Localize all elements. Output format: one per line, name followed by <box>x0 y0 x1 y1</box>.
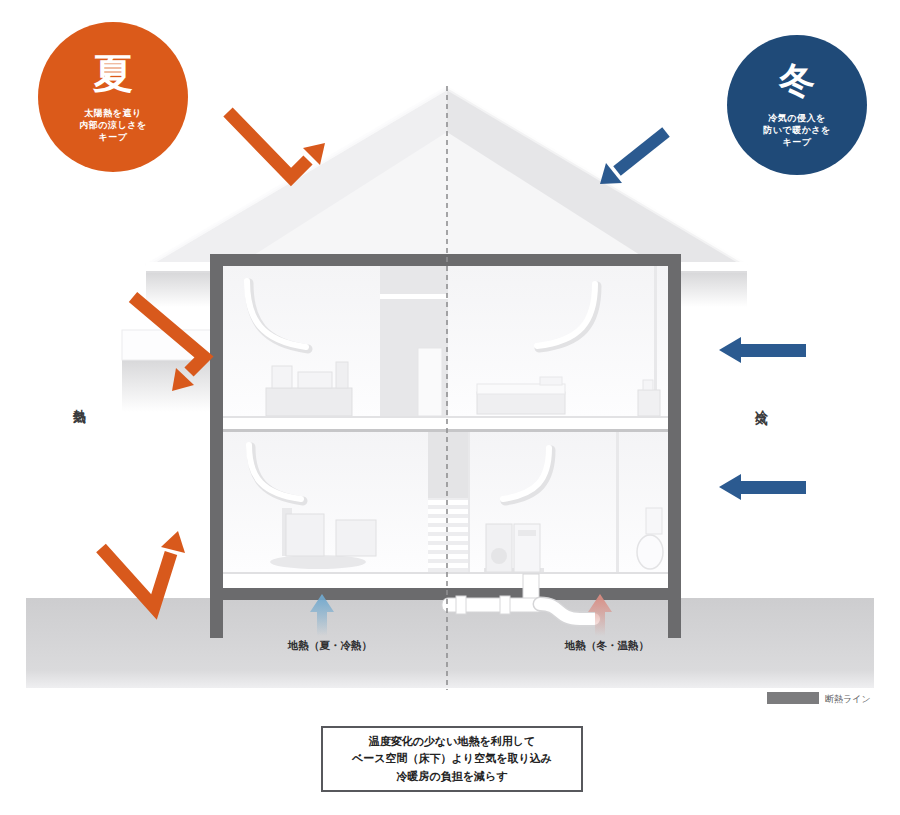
hot-air-label: 熱気 <box>70 398 88 404</box>
winter-note: 冷気の侵入を 防いで暖かさを キープ <box>763 112 831 148</box>
staircase <box>428 430 468 572</box>
laundry-units <box>484 524 544 574</box>
caption-box: 温度変化の少ない地熱を利用して ベース空間（床下）より空気を取り込み 冷暖房の負… <box>321 726 583 792</box>
side-awning <box>122 330 214 412</box>
caption-line: ベース空間（床下）より空気を取り込み <box>352 750 552 768</box>
tall-cabinet <box>418 348 442 416</box>
cold-air-label: 冷気 <box>752 400 770 406</box>
summer-note: 太陽熱を遮り 内部の涼しさを キープ <box>79 107 146 143</box>
insulation-line-legend-label: 断熱ライン <box>825 693 871 706</box>
geothermal-winter-label: 地熱（冬・温熱） <box>522 639 692 653</box>
house-interior <box>223 266 668 592</box>
caption-line: 冷暖房の負担を減らす <box>396 768 507 786</box>
house-thermal-diagram: 夏 太陽熱を遮り 内部の涼しさを キープ 冬 冷気の侵入を 防いで暖かさを キー… <box>0 0 900 815</box>
summer-title: 夏 <box>93 46 133 101</box>
winter-title: 冬 <box>779 57 815 106</box>
summer-badge: 夏 太陽熱を遮り 内部の涼しさを キープ <box>38 22 188 172</box>
geothermal-summer-label: 地熱（夏・冷熱） <box>245 639 415 653</box>
insulation-line-swatch <box>767 692 819 704</box>
winter-badge: 冬 冷気の侵入を 防いで暖かさを キープ <box>727 35 867 175</box>
caption-line: 温度変化の少ない地熱を利用して <box>369 733 536 751</box>
